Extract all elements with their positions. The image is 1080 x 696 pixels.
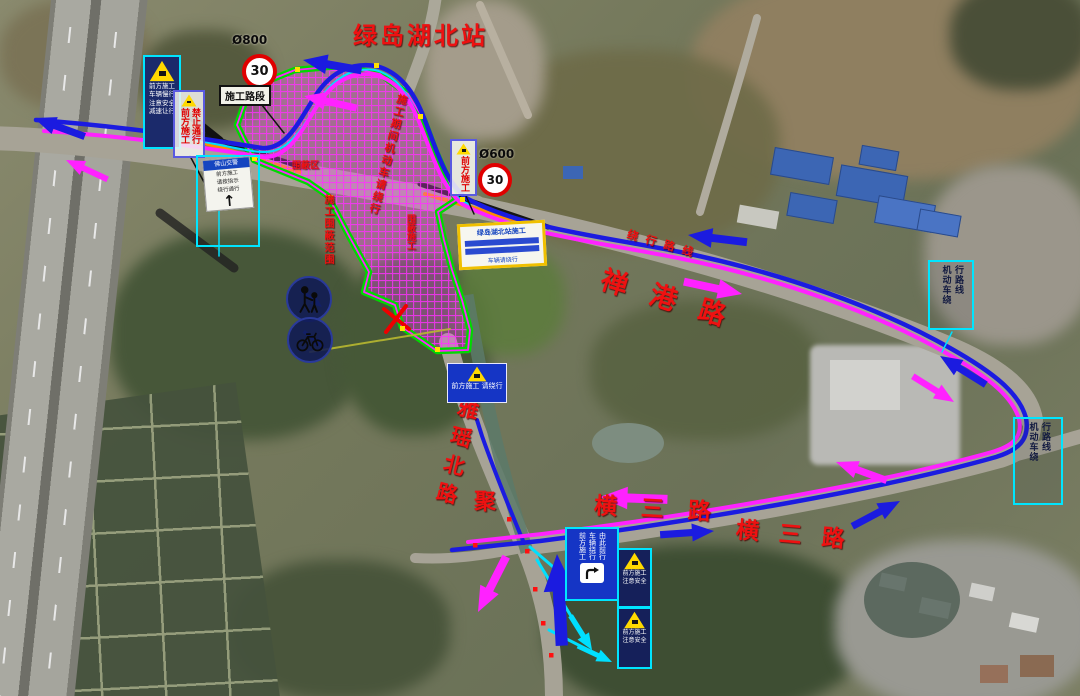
- guide-text-col: 前方施工: [579, 532, 586, 560]
- pipe-diameter-label-800: Ø800: [232, 33, 267, 47]
- warning-text: 车辆慢行: [149, 90, 175, 98]
- banner-text: 禁止通行: [190, 108, 199, 144]
- route-note-board-right-top: 机动车绕 行路线: [928, 260, 974, 330]
- guide-board-left-frame: 佛山交警 前方施工 请按指示 绕行通行 ↑: [196, 155, 260, 247]
- enclosure-annotation: 施工围蔽范围: [320, 194, 335, 266]
- speed-value: 30: [487, 173, 504, 187]
- bicycle-route-sign: [287, 317, 333, 363]
- up-arrow-icon: ↑: [206, 191, 253, 211]
- station-name-label: 绿岛湖北站: [353, 16, 488, 51]
- small-warning-sign-bottom: 前方施工 注意安全: [617, 607, 652, 669]
- bicycle-icon: [295, 325, 325, 355]
- warning-text: 注意安全: [622, 578, 646, 586]
- note-text-col: 机动车绕: [1027, 422, 1036, 462]
- small-warning-sign-top: 前方施工 注意安全: [617, 548, 652, 608]
- enclosure-annotation-small: 围蔽区: [292, 158, 319, 171]
- red-banner-left: 前方施工 禁止通行: [173, 90, 205, 158]
- route-note-board-right-bottom: 机动车绕 行路线: [1013, 417, 1063, 505]
- construction-section-label: 施工路段: [219, 85, 271, 106]
- warning-text: 前方施工: [622, 570, 646, 578]
- yellow-notice-board: 绿岛湖北站施工 车辆请绕行: [457, 220, 547, 271]
- road-label-ju: 聚: [474, 484, 496, 516]
- note-text-col: 行路线: [953, 265, 962, 295]
- speed-limit-sign-left: 30: [242, 54, 277, 89]
- bottom-guide-sign: 前方施工 车辆绕行 由此前行: [565, 527, 619, 601]
- traffic-diversion-map: 绿岛湖北站 禅港路 横三路 横三路 雅瑶北路 聚 施工期间机动车请绕行 施工围蔽…: [0, 0, 1080, 696]
- road-label-hengsan-west: 横三路: [593, 486, 736, 527]
- construction-warning-icon: [149, 60, 175, 82]
- tail-annotation: 围蔽施工: [404, 214, 417, 250]
- speed-limit-sign-mid: 30: [478, 163, 512, 197]
- construction-warning-icon: [624, 552, 646, 570]
- construction-warning-icon: [456, 143, 471, 155]
- warning-text: 注意安全: [622, 637, 646, 645]
- banner-text: 前方施工: [179, 108, 188, 144]
- guide-text-col: 由此前行: [599, 532, 606, 560]
- turn-right-arrow-icon: [580, 563, 604, 583]
- sign-text-line: 前方施工: [451, 382, 479, 390]
- pedestrian-route-sign: [286, 276, 332, 322]
- note-text-col: 机动车绕: [940, 265, 949, 305]
- construction-warning-icon: [467, 366, 487, 382]
- pedestrian-icon: [294, 284, 324, 314]
- speed-value: 30: [250, 64, 268, 79]
- banner-text: 前方施工: [459, 156, 468, 192]
- construction-warning-icon: [624, 611, 646, 629]
- notice-line: 车辆请绕行: [462, 253, 544, 266]
- red-banner-mid: 前方施工: [450, 139, 477, 196]
- note-text-col: 行路线: [1040, 422, 1049, 452]
- sign-text: 前方施工 请绕行: [451, 382, 502, 390]
- guide-text-col: 车辆绕行: [589, 532, 596, 560]
- blue-construction-sign: 前方施工 请绕行: [447, 363, 507, 403]
- warning-text: 前方施工: [622, 629, 646, 637]
- pipe-diameter-label-600: Ø600: [479, 147, 514, 161]
- sign-text-line: 请绕行: [482, 382, 503, 390]
- construction-warning-icon: [181, 94, 197, 107]
- warning-text: 减速让行: [149, 107, 175, 115]
- guide-board-left: 佛山交警 前方施工 请按指示 绕行通行 ↑: [202, 156, 254, 212]
